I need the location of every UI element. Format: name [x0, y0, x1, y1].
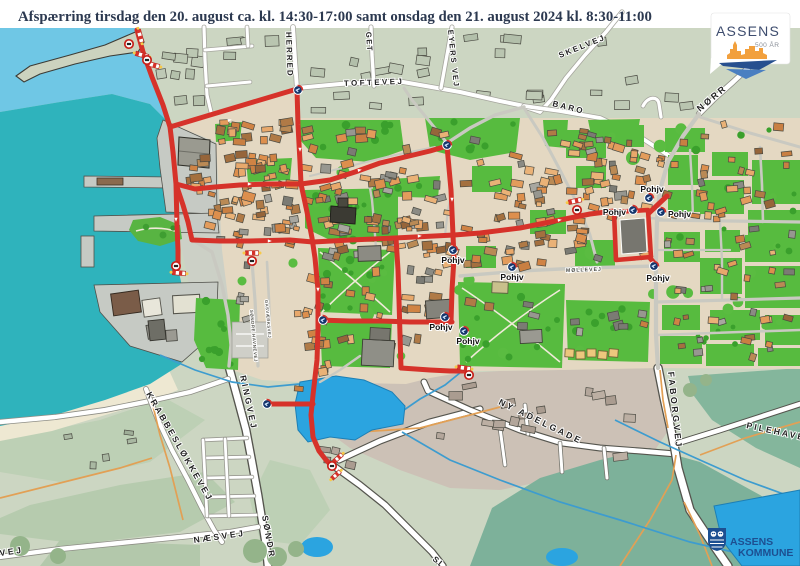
svg-text:ASSENS: ASSENS [716, 23, 780, 39]
svg-text:KOMMUNE: KOMMUNE [738, 547, 793, 559]
svg-text:MØLLEVEJ: MØLLEVEJ [566, 267, 602, 274]
svg-text:Pohjv: Pohjv [603, 207, 626, 217]
svg-text:Pohjv: Pohjv [646, 273, 669, 283]
svg-text:500 ÅR: 500 ÅR [755, 40, 779, 49]
svg-text:Pohjv: Pohjv [500, 272, 523, 282]
svg-text:Afspærring tirsdag den 20. aug: Afspærring tirsdag den 20. august ca. kl… [18, 9, 652, 25]
svg-text:GET: GET [364, 32, 374, 53]
svg-text:Pohjv: Pohjv [456, 336, 479, 346]
svg-text:HERRED: HERRED [284, 32, 295, 78]
svg-text:Pohjv: Pohjv [429, 322, 452, 332]
svg-text:Pohjv: Pohjv [640, 184, 663, 194]
svg-text:Pohjv: Pohjv [668, 209, 691, 219]
svg-text:Pohjv: Pohjv [441, 255, 464, 265]
